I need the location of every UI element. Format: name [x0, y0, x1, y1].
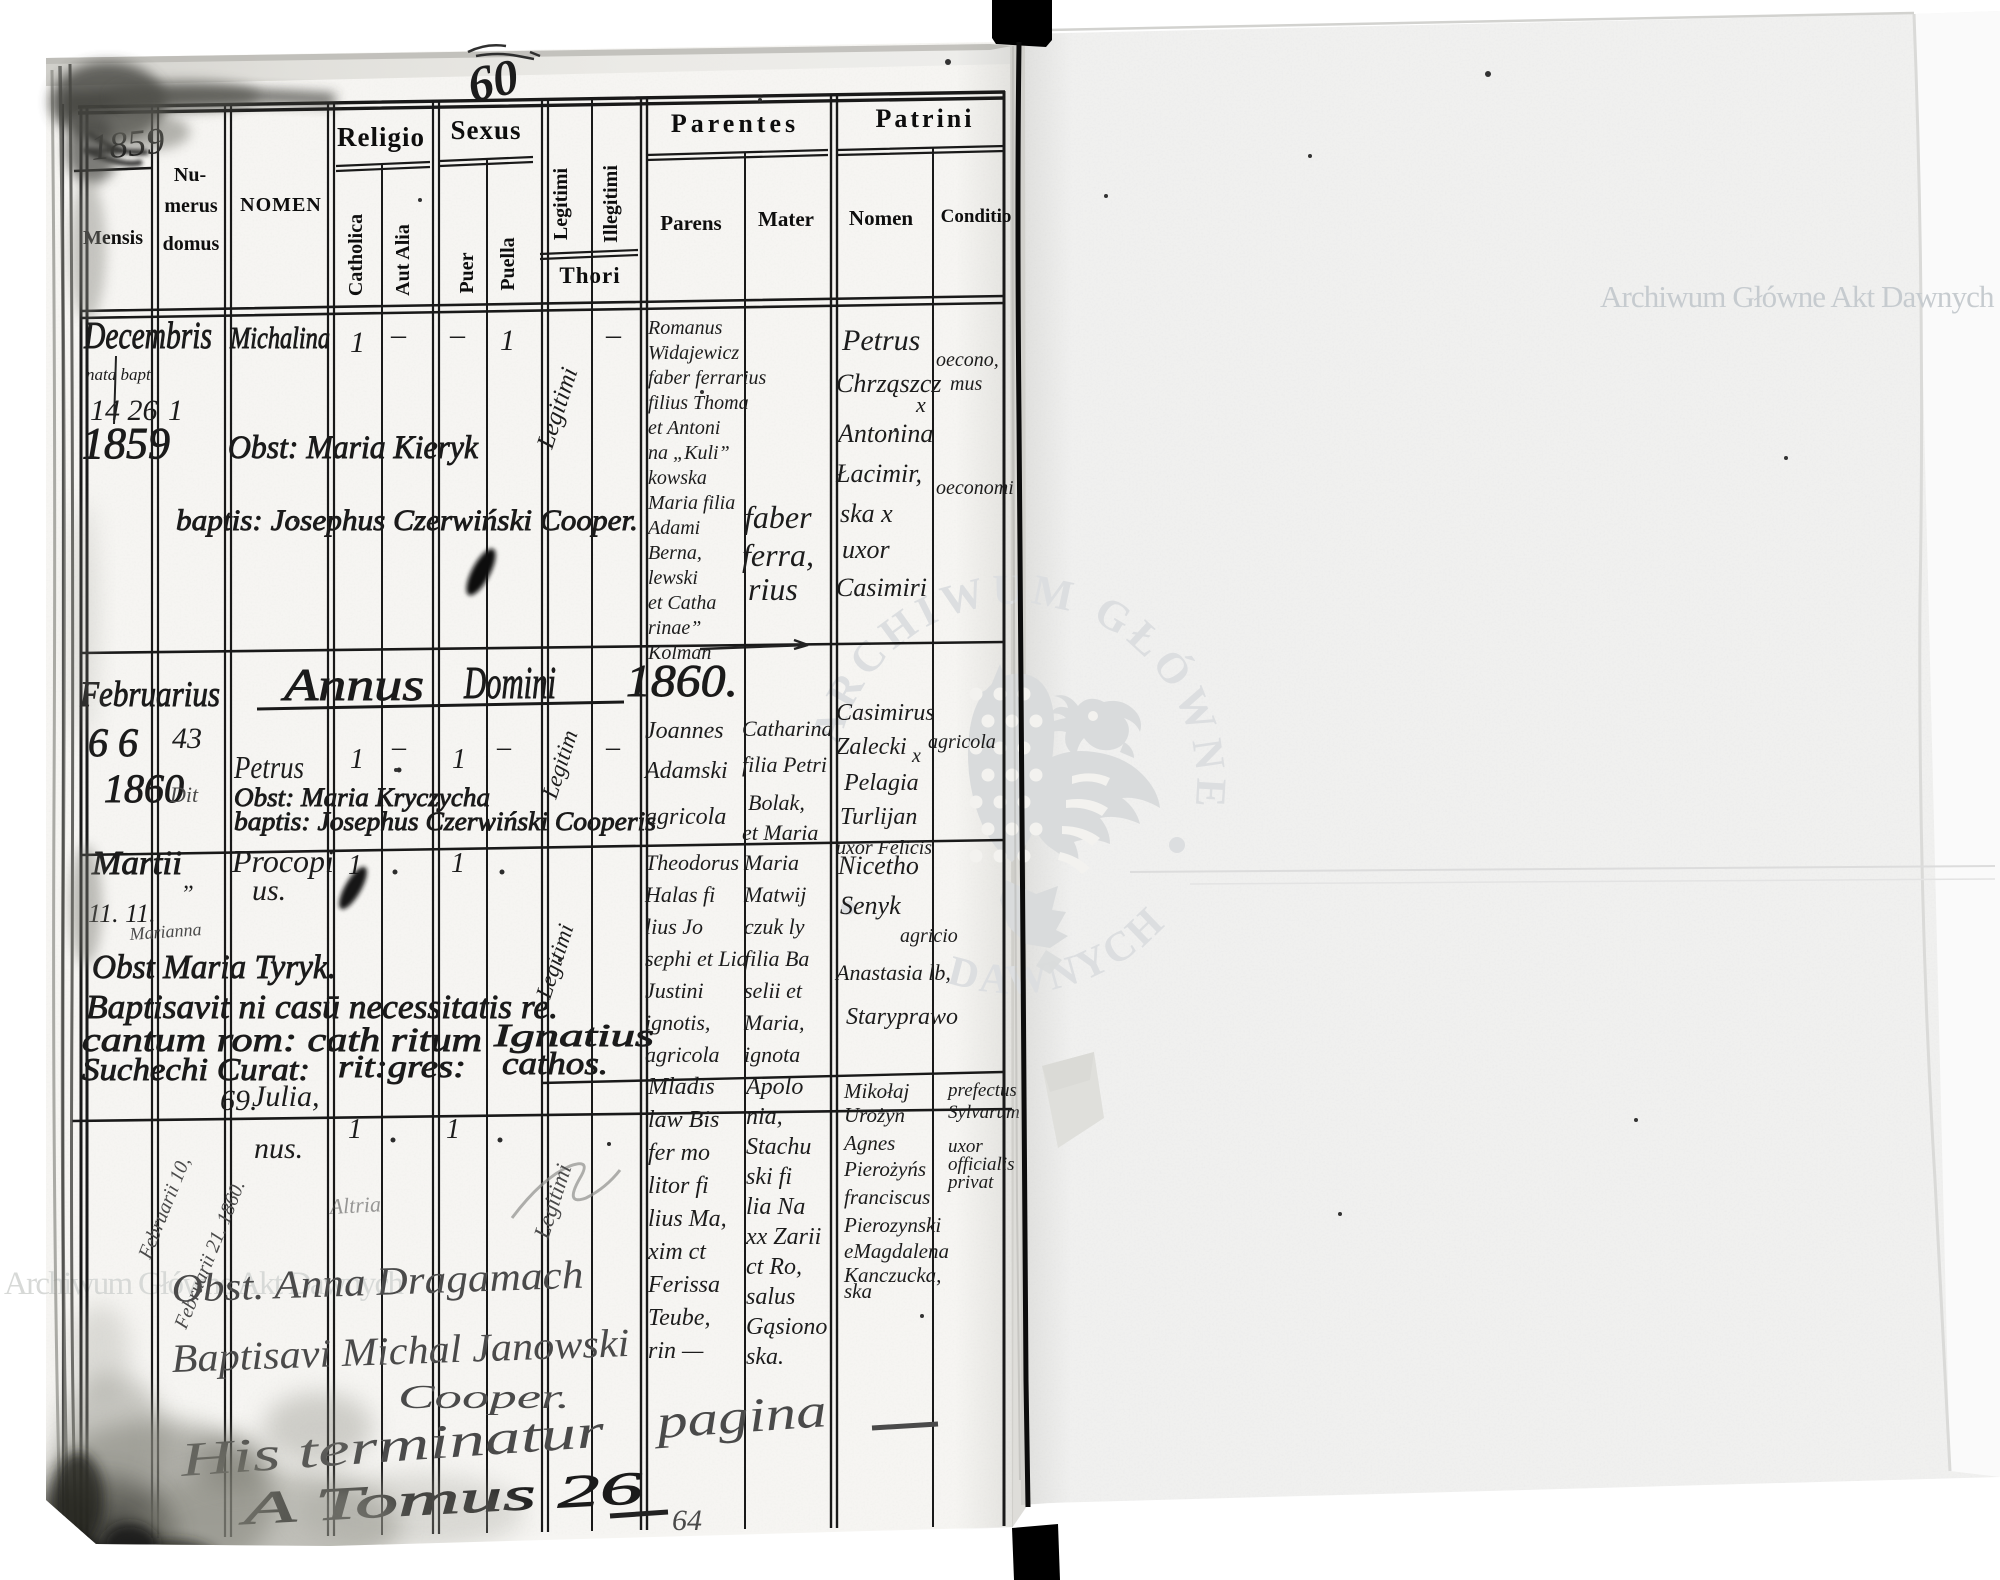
- svg-text:baptis: Josephus Czerwiński: baptis: Josephus Czerwiński Cooperis: [234, 807, 656, 836]
- svg-text:lius Jo: lius Jo: [645, 914, 703, 939]
- svg-text:faber ferrarius: faber ferrarius: [648, 367, 767, 389]
- svg-text:–: –: [449, 318, 466, 351]
- svg-text:Gąsiono: Gąsiono: [746, 1314, 827, 1340]
- svg-text:Sylvarum: Sylvarum: [948, 1102, 1020, 1123]
- svg-text:Obst Maria Tyryk.: Obst Maria Tyryk.: [92, 949, 336, 986]
- svg-text:Agnes: Agnes: [842, 1131, 895, 1155]
- svg-text:Senyk: Senyk: [840, 891, 901, 920]
- svg-text:litor fi: litor fi: [648, 1173, 709, 1199]
- svg-text:1860.: 1860.: [626, 655, 738, 706]
- svg-text:x: x: [915, 392, 926, 417]
- svg-text:cathos.: cathos.: [502, 1045, 608, 1081]
- svg-text:Halas fi: Halas fi: [644, 882, 715, 907]
- svg-text:et Antoni: et Antoni: [648, 417, 720, 439]
- svg-text:Domini: Domini: [463, 657, 556, 708]
- svg-text:agricio: agricio: [900, 925, 958, 947]
- svg-text:–: –: [496, 732, 512, 763]
- svg-text:Berna,: Berna,: [648, 542, 702, 564]
- svg-text:Ferissa: Ferissa: [647, 1272, 720, 1298]
- svg-text:ferra,: ferra,: [742, 537, 814, 573]
- svg-text:nus.: nus.: [254, 1132, 303, 1165]
- svg-text:et Maria: et Maria: [742, 820, 818, 845]
- svg-text:Obst: Maria Kieryk: Obst: Maria Kieryk: [228, 430, 479, 466]
- svg-text:Puer: Puer: [456, 252, 478, 293]
- svg-text:Joannes: Joannes: [645, 718, 724, 744]
- svg-text:Mladis: Mladis: [647, 1074, 715, 1100]
- svg-text:agricola: agricola: [928, 731, 996, 753]
- svg-text:ska x: ska x: [840, 499, 893, 528]
- svg-text:Pelagia: Pelagia: [843, 770, 919, 796]
- svg-text:baptis: Josephus Czerwiński: baptis: Josephus Czerwiński Cooper.: [176, 504, 638, 537]
- svg-text:lia Na: lia Na: [746, 1194, 805, 1220]
- svg-text:Bolak,: Bolak,: [748, 790, 805, 815]
- svg-text:Annus: Annus: [280, 659, 424, 710]
- svg-text:Pierożyńs: Pierożyńs: [843, 1157, 926, 1181]
- svg-text:Maria filia: Maria filia: [647, 492, 735, 514]
- svg-text:Anastasia lb,: Anastasia lb,: [834, 960, 951, 985]
- svg-text:Illegitimi: Illegitimi: [600, 165, 622, 243]
- svg-text:privat: privat: [946, 1172, 994, 1193]
- svg-text:Adamski: Adamski: [643, 758, 728, 784]
- svg-text:eMagdalena: eMagdalena: [844, 1239, 949, 1263]
- svg-text:agricola: agricola: [645, 804, 726, 830]
- svg-text:43: 43: [172, 722, 202, 755]
- svg-text:ct Ro,: ct Ro,: [746, 1254, 802, 1280]
- svg-text:Dit: Dit: [169, 782, 199, 807]
- svg-text:–: –: [605, 732, 621, 763]
- svg-text:„: „: [183, 868, 196, 894]
- svg-text:Puella: Puella: [497, 237, 519, 290]
- svg-text:salus: salus: [746, 1284, 795, 1310]
- svg-text:xim ct: xim ct: [647, 1239, 707, 1265]
- svg-text:–: –: [605, 318, 622, 351]
- svg-text:1859: 1859: [82, 419, 170, 468]
- svg-text:mus: mus: [950, 373, 982, 395]
- svg-text:oeconomi: oeconomi: [936, 477, 1014, 499]
- svg-text:ska.: ska.: [746, 1344, 784, 1370]
- svg-text:Julia,: Julia,: [252, 1080, 320, 1113]
- svg-text:filia Ba: filia Ba: [744, 946, 809, 971]
- svg-text:1: 1: [350, 326, 365, 359]
- svg-text:64: 64: [672, 1504, 702, 1537]
- svg-text:Antonina: Antonina: [836, 419, 933, 448]
- svg-text:Maria: Maria: [743, 850, 799, 875]
- svg-text:Mater: Mater: [758, 207, 814, 231]
- svg-text:Catharina: Catharina: [742, 716, 832, 741]
- svg-text:Zalecki: Zalecki: [836, 734, 907, 760]
- svg-text:Februarius: Februarius: [79, 674, 220, 714]
- svg-text:1: 1: [348, 1114, 362, 1145]
- svg-text:ignota: ignota: [744, 1042, 800, 1067]
- svg-text:Justini: Justini: [645, 978, 704, 1003]
- svg-text:1: 1: [452, 744, 466, 775]
- svg-text:–: –: [390, 318, 407, 351]
- svg-text:1: 1: [350, 744, 364, 775]
- svg-text:filia Petri: filia Petri: [742, 752, 827, 777]
- svg-text:filius Thoma: filius Thoma: [648, 392, 749, 414]
- svg-text:Parens: Parens: [660, 211, 721, 235]
- svg-text:merus: merus: [164, 195, 218, 217]
- svg-text:Theodorus: Theodorus: [645, 850, 739, 875]
- svg-text:prefectus: prefectus: [946, 1080, 1017, 1101]
- svg-text:ska: ska: [844, 1279, 872, 1303]
- svg-text:selii et: selii et: [744, 978, 803, 1003]
- svg-text:us.: us.: [252, 874, 286, 907]
- svg-text:oecono,: oecono,: [936, 349, 999, 371]
- svg-text:franciscus: franciscus: [844, 1185, 930, 1209]
- svg-text:Altria: Altria: [327, 1191, 382, 1219]
- svg-text:nata bapt: nata bapt: [86, 365, 152, 384]
- svg-text:–: –: [391, 732, 407, 763]
- svg-text:Thori: Thori: [559, 263, 620, 288]
- svg-text:domus: domus: [163, 233, 220, 255]
- svg-text:Widajewicz: Widajewicz: [648, 342, 739, 364]
- svg-text:1: 1: [446, 1114, 460, 1145]
- svg-text:Catholica: Catholica: [345, 214, 367, 296]
- svg-text:Staryprawo: Staryprawo: [846, 1004, 958, 1030]
- svg-text:Michalina: Michalina: [229, 320, 330, 355]
- svg-text:Adami: Adami: [646, 517, 700, 539]
- svg-text:Conditio: Conditio: [941, 206, 1012, 227]
- svg-text:Nomen: Nomen: [849, 206, 913, 230]
- svg-text:sephi et Lia: sephi et Lia: [645, 946, 748, 971]
- svg-text:rin —: rin —: [648, 1338, 704, 1364]
- svg-text:Urożyn: Urożyn: [844, 1103, 905, 1127]
- svg-text:Legitimi: Legitimi: [550, 167, 572, 240]
- svg-text:na „Kuli”: na „Kuli”: [648, 442, 730, 464]
- svg-text:Martii: Martii: [91, 845, 182, 882]
- svg-text:x: x: [911, 745, 921, 767]
- svg-text:lewski: lewski: [648, 567, 698, 589]
- svg-text:rinae”: rinae”: [648, 617, 701, 639]
- svg-text:czuk ly: czuk ly: [744, 914, 805, 939]
- svg-text:Pierozynski: Pierozynski: [843, 1213, 941, 1237]
- svg-text:Archiwum Główne Akt Dawnych: Archiwum Główne Akt Dawnych: [1600, 279, 1995, 314]
- svg-text:Casimirus: Casimirus: [836, 700, 935, 726]
- svg-text:Religio: Religio: [337, 122, 425, 152]
- svg-text:6 6: 6 6: [88, 720, 138, 765]
- svg-text:ignotis,: ignotis,: [645, 1010, 710, 1035]
- svg-text:Teube,: Teube,: [648, 1305, 710, 1331]
- svg-text:lius Ma,: lius Ma,: [648, 1206, 727, 1232]
- svg-text:Aut Alia: Aut Alia: [392, 224, 414, 296]
- svg-text:Romanus: Romanus: [647, 317, 723, 339]
- svg-text:Mikołaj: Mikołaj: [843, 1079, 909, 1103]
- svg-text:Parentes: Parentes: [671, 109, 799, 138]
- svg-text:Baptisavit ni casū necessitati: Baptisavit ni casū necessitatis re.: [86, 989, 558, 1026]
- svg-text:NOMEN: NOMEN: [240, 194, 322, 216]
- svg-text:Decembris: Decembris: [83, 315, 212, 357]
- svg-text:Łacimir,: Łacimir,: [835, 459, 922, 488]
- svg-text:Petrus: Petrus: [841, 324, 920, 357]
- svg-text:Apolo: Apolo: [744, 1074, 803, 1100]
- svg-text:uxor: uxor: [842, 535, 891, 564]
- svg-text:et Catha: et Catha: [648, 592, 716, 614]
- svg-text:agricola: agricola: [645, 1042, 720, 1067]
- svg-text:ski fi: ski fi: [746, 1164, 792, 1190]
- svg-text:rit:gres:: rit:gres:: [338, 1048, 466, 1084]
- svg-text:Patrini: Patrini: [876, 104, 975, 133]
- svg-text:kowska: kowska: [648, 467, 707, 489]
- svg-text:Petrus: Petrus: [233, 749, 304, 785]
- svg-text:rius: rius: [748, 571, 798, 607]
- svg-text:1: 1: [451, 848, 465, 879]
- svg-text:Nicetho: Nicetho: [837, 851, 919, 880]
- svg-text:nia,: nia,: [746, 1104, 783, 1130]
- svg-text:Sexus: Sexus: [450, 115, 521, 145]
- svg-text:Stachu: Stachu: [746, 1134, 811, 1160]
- svg-text:Maria,: Maria,: [743, 1010, 805, 1035]
- svg-text:faber: faber: [744, 499, 812, 535]
- svg-text:xx Zarii: xx Zarii: [745, 1224, 821, 1250]
- svg-text:law Bis: law Bis: [648, 1107, 719, 1133]
- svg-text:Nu-: Nu-: [174, 164, 206, 186]
- svg-text:1: 1: [168, 394, 183, 427]
- svg-text:Casimiri: Casimiri: [836, 573, 927, 602]
- svg-text:fer mo: fer mo: [648, 1140, 710, 1166]
- svg-text:1: 1: [500, 324, 515, 357]
- svg-text:Matwij: Matwij: [743, 882, 806, 907]
- svg-text:Turlijan: Turlijan: [840, 804, 917, 830]
